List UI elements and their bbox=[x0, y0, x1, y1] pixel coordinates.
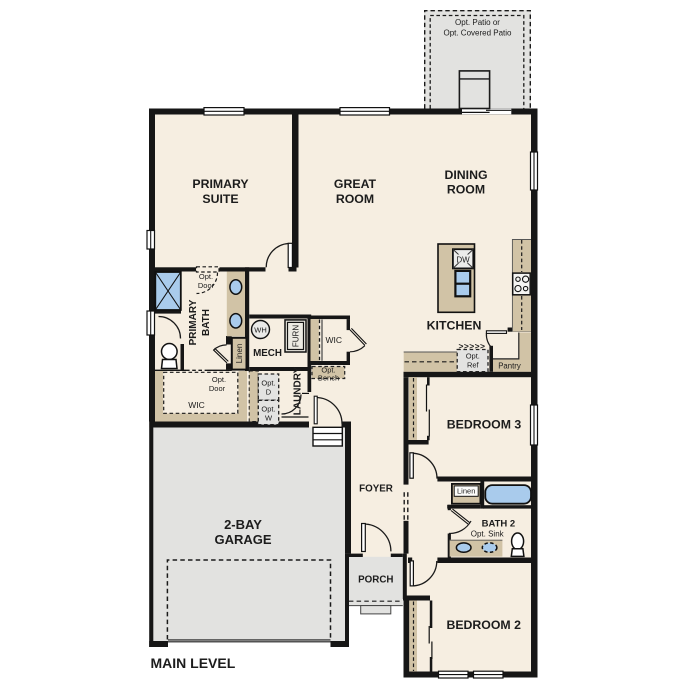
svg-text:>>>>>: >>>>> bbox=[459, 341, 486, 351]
svg-text:Linen: Linen bbox=[457, 487, 475, 496]
svg-text:D: D bbox=[266, 388, 272, 397]
svg-text:ROOM: ROOM bbox=[447, 183, 485, 197]
svg-text:Linen: Linen bbox=[235, 344, 244, 364]
svg-text:Opt.: Opt. bbox=[261, 405, 275, 414]
svg-text:Door: Door bbox=[209, 384, 226, 393]
svg-text:MAIN LEVEL: MAIN LEVEL bbox=[151, 655, 236, 671]
svg-text:Bench: Bench bbox=[318, 374, 339, 383]
svg-text:Opt.: Opt. bbox=[466, 352, 480, 361]
svg-text:2-BAY: 2-BAY bbox=[224, 517, 262, 532]
svg-text:WIC: WIC bbox=[188, 400, 205, 410]
svg-text:MECH: MECH bbox=[253, 348, 282, 359]
svg-text:PRIMARY: PRIMARY bbox=[188, 299, 199, 345]
svg-text:BATH 2: BATH 2 bbox=[482, 519, 516, 530]
svg-text:DW: DW bbox=[456, 256, 470, 265]
svg-text:Opt.: Opt. bbox=[212, 375, 226, 384]
svg-text:Opt. Covered Patio: Opt. Covered Patio bbox=[443, 29, 512, 38]
svg-text:GREAT: GREAT bbox=[334, 177, 377, 191]
svg-text:ROOM: ROOM bbox=[336, 192, 374, 206]
svg-text:Pantry: Pantry bbox=[498, 361, 521, 370]
svg-text:DINING: DINING bbox=[444, 168, 487, 182]
svg-text:GARAGE: GARAGE bbox=[214, 532, 271, 547]
svg-text:Opt. Patio or: Opt. Patio or bbox=[455, 18, 500, 27]
svg-text:FURN: FURN bbox=[292, 325, 301, 347]
svg-text:Door: Door bbox=[198, 281, 215, 290]
svg-text:WIC: WIC bbox=[326, 335, 343, 345]
svg-text:PRIMARY: PRIMARY bbox=[192, 177, 248, 191]
svg-text:BATH: BATH bbox=[201, 309, 212, 336]
svg-text:BEDROOM 3: BEDROOM 3 bbox=[447, 418, 522, 432]
svg-text:W: W bbox=[265, 414, 273, 423]
svg-text:Opt. Sink: Opt. Sink bbox=[471, 530, 505, 539]
svg-text:Ref: Ref bbox=[467, 361, 480, 370]
svg-text:Opt.: Opt. bbox=[199, 272, 213, 281]
svg-text:BEDROOM 2: BEDROOM 2 bbox=[446, 618, 521, 632]
svg-text:WH: WH bbox=[254, 326, 267, 335]
svg-text:KITCHEN: KITCHEN bbox=[427, 319, 482, 333]
svg-text:LAUNDRY: LAUNDRY bbox=[292, 366, 303, 415]
svg-text:PORCH: PORCH bbox=[358, 575, 393, 586]
svg-text:FOYER: FOYER bbox=[359, 484, 393, 495]
svg-text:SUITE: SUITE bbox=[202, 192, 238, 206]
svg-text:Opt.: Opt. bbox=[261, 379, 275, 388]
